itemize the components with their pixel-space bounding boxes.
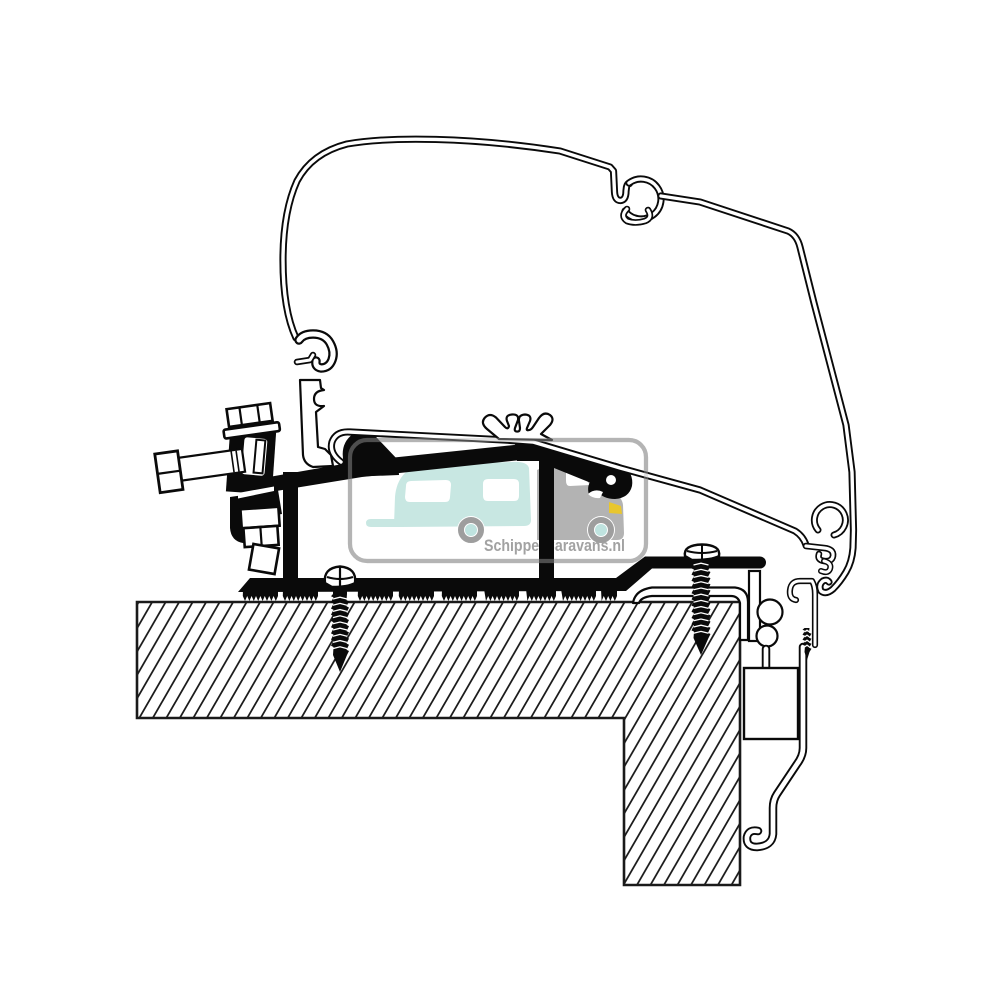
svg-text:SchipperCaravans.nl: SchipperCaravans.nl xyxy=(484,536,625,555)
